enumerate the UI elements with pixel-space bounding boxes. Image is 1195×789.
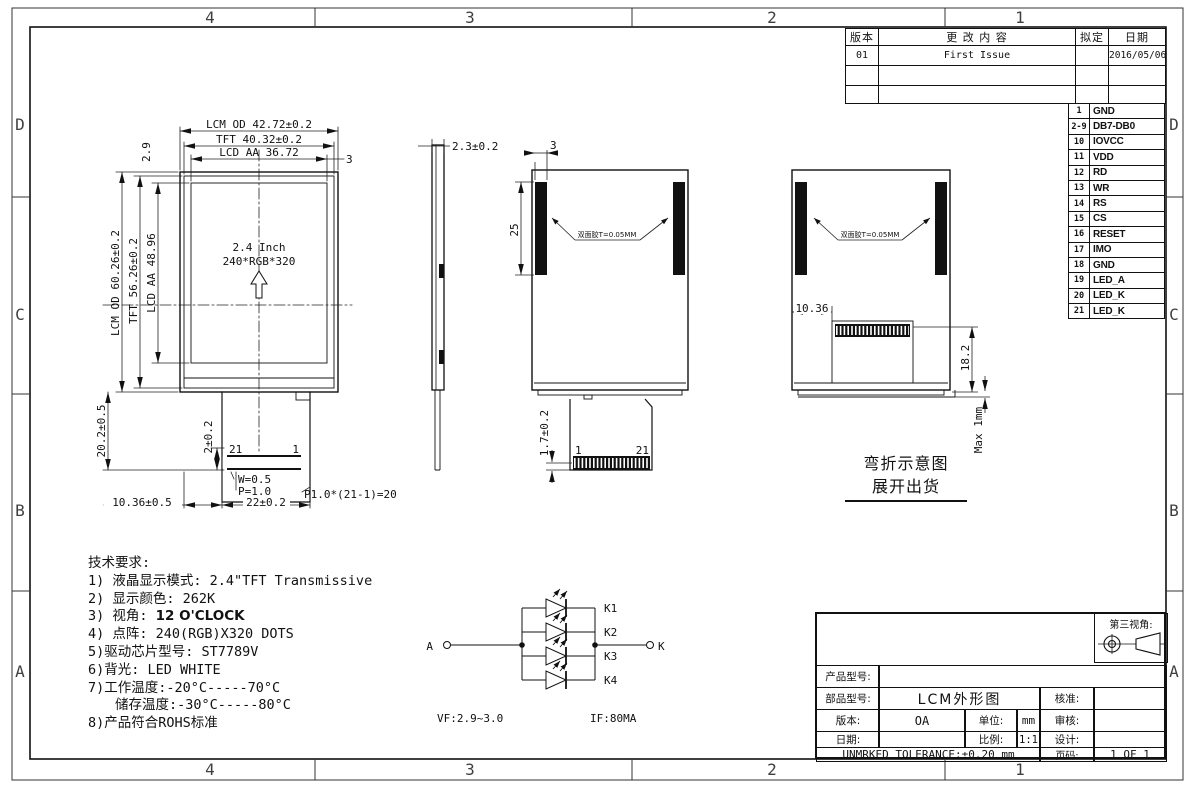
side-view: 2.3±0.2 xyxy=(418,139,498,470)
dim-lcd-aa-width: LCD AA 36.72 xyxy=(219,146,298,159)
date-value xyxy=(878,731,966,748)
revision-drafter xyxy=(1076,46,1109,66)
pin-number: 14 xyxy=(1069,196,1090,211)
revision-header-date: 日期 xyxy=(1109,29,1166,46)
pin-row: 15CS xyxy=(1069,211,1165,226)
tech-notes: 技术要求: 1) 液晶显示模式: 2.4"TFT Transmissive 2)… xyxy=(88,555,372,733)
tech-note-line: 2) 显示颜色: 262K xyxy=(88,591,372,609)
tape-callout-label: 双面胶T=0.05MM xyxy=(841,230,900,239)
fpc-pin-strip xyxy=(573,456,650,470)
pin-name: RS xyxy=(1090,196,1165,211)
pin-number: 1 xyxy=(1069,104,1090,119)
anode-label: A xyxy=(426,640,433,653)
tape-strip-right xyxy=(935,182,947,275)
branch-label-k3: K3 xyxy=(604,650,617,663)
dim-thickness: 2.3±0.2 xyxy=(452,140,498,153)
tech-note-line: 4) 点阵: 240(RGB)X320 DOTS xyxy=(88,626,372,644)
pin-name: RESET xyxy=(1090,227,1165,242)
zone-label-left-b: B xyxy=(15,501,25,520)
rear-view: 3 25 双面胶T=0.05MM 1 21 1.7±0.2 xyxy=(508,139,688,483)
tech-note-prefix: 3) 视角: xyxy=(88,608,156,624)
revision-row xyxy=(846,86,1166,104)
tolerance-note: UNMRKED TOLERANCE:±0.20 mm xyxy=(816,747,1041,762)
tech-note-viewing-angle: 12 O'CLOCK xyxy=(156,608,245,624)
folded-pin-strip xyxy=(835,324,910,337)
pin-number: 15 xyxy=(1069,211,1090,226)
zone-label-right-b: B xyxy=(1169,501,1179,520)
design-label: 设计: xyxy=(1039,731,1095,748)
dim-offset: 10.36±0.5 xyxy=(112,496,172,509)
dim-max-protrusion: Max 1mm xyxy=(972,406,985,453)
tech-note-line: 7)工作温度:-20°C-----70°C xyxy=(88,680,372,698)
pin-row: 17IMO xyxy=(1069,242,1165,257)
bend-view: 双面胶T=0.05MM 10.36 18.2 Max 1mm xyxy=(792,170,990,453)
zone-label-bottom-1: 1 xyxy=(1015,760,1025,779)
dim-fold-offset: 10.36 xyxy=(795,302,828,315)
pin-number: 13 xyxy=(1069,180,1090,195)
dim-lcd-aa-height: LCD AA 48.96 xyxy=(145,233,158,312)
page-value: 1 OF 1 xyxy=(1093,747,1167,762)
branch-label-k2: K2 xyxy=(604,626,617,639)
pin-number: 2-9 xyxy=(1069,119,1090,134)
zone-label-left-d: D xyxy=(15,115,25,134)
dim-fold-height: 18.2 xyxy=(959,345,972,372)
tech-note-line: 6)背光: LED WHITE xyxy=(88,662,372,680)
branch-label-k1: K1 xyxy=(604,602,617,615)
product-model-label: 产品型号: xyxy=(816,665,880,688)
pin-row: 1GND xyxy=(1069,104,1165,119)
revision-table: 版本 更 改 内 容 拟定 日期 01 First Issue 2016/05/… xyxy=(845,28,1166,104)
pin-table: 1GND 2-9DB7-DB0 10IOVCC 11VDD 12RD 13WR … xyxy=(1068,103,1165,319)
led-diode-icon xyxy=(522,637,595,665)
revision-date xyxy=(1109,86,1166,104)
dim-tft-height: TFT 56.26±0.2 xyxy=(127,238,140,324)
review-value xyxy=(1093,709,1167,732)
dim-pitch-total: P1.0*(21-1)=20 xyxy=(304,488,397,501)
revision-content: First Issue xyxy=(879,46,1076,66)
pin-name: WR xyxy=(1090,180,1165,195)
tech-note-line: 5)驱动芯片型号: ST7789V xyxy=(88,644,372,662)
pin-number: 18 xyxy=(1069,257,1090,272)
pin-name: DB7-DB0 xyxy=(1090,119,1165,134)
revision-version: 01 xyxy=(846,46,879,66)
revision-content xyxy=(879,66,1076,86)
revision-date xyxy=(1109,66,1166,86)
review-label: 审核: xyxy=(1039,709,1095,732)
dim-3: 3 xyxy=(346,153,353,166)
zone-label-top-3: 3 xyxy=(465,8,475,27)
pin-row: 2-9DB7-DB0 xyxy=(1069,119,1165,134)
screen-size-label: 2.4 Inch xyxy=(233,241,286,254)
pin-row: 12RD xyxy=(1069,165,1165,180)
cathode-label: K xyxy=(658,640,665,653)
page-label: 页码: xyxy=(1039,747,1095,762)
pin-number: 19 xyxy=(1069,273,1090,288)
approve-value xyxy=(1093,687,1167,710)
pin-number: 17 xyxy=(1069,242,1090,257)
dim-fpc-tail: 1.7±0.2 xyxy=(538,410,551,456)
approve-label: 核准: xyxy=(1039,687,1095,710)
pin-number: 20 xyxy=(1069,288,1090,303)
pin-21-label: 21 xyxy=(229,443,242,456)
pin-row: 20LED_K xyxy=(1069,288,1165,303)
led-diode-icon xyxy=(522,613,595,641)
pin-name: RD xyxy=(1090,165,1165,180)
bend-view-caption: 弯折示意图 展开出货 xyxy=(845,452,967,502)
version-label: 版本: xyxy=(816,709,880,732)
pin-name: LED_K xyxy=(1090,288,1165,303)
zone-label-left-c: C xyxy=(15,305,25,324)
pin-number: 11 xyxy=(1069,150,1090,165)
dim-tape-width: 3 xyxy=(550,139,557,152)
zone-label-top-4: 4 xyxy=(205,8,215,27)
unit-value: mm xyxy=(1016,709,1041,732)
revision-drafter xyxy=(1076,66,1109,86)
zone-label-left-a: A xyxy=(15,662,25,681)
scale-value: 1:1 xyxy=(1016,731,1041,748)
unit-label: 单位: xyxy=(964,709,1018,732)
tape-strip-right xyxy=(673,182,685,275)
branch-label-k4: K4 xyxy=(604,674,618,687)
tape-strip-left xyxy=(795,182,807,275)
scale-label: 比例: xyxy=(964,731,1018,748)
up-arrow-icon xyxy=(251,271,267,298)
tape-callout-label: 双面胶T=0.05MM xyxy=(578,230,637,239)
pin-row: 13WR xyxy=(1069,180,1165,195)
revision-drafter xyxy=(1076,86,1109,104)
front-view: 2.4 Inch 240*RGB*320 LCM OD 42.72±0.2 TF… xyxy=(95,118,397,509)
pin-row: 14RS xyxy=(1069,196,1165,211)
dim-fpc-width: 22±0.2 xyxy=(246,496,286,509)
bend-caption-line2: 展开出货 xyxy=(845,475,967,498)
zone-label-right-a: A xyxy=(1169,662,1179,681)
dim-lcm-od-width: LCM OD 42.72±0.2 xyxy=(206,118,312,131)
pin-number: 12 xyxy=(1069,165,1090,180)
tech-notes-title: 技术要求: xyxy=(88,555,372,573)
date-label: 日期: xyxy=(816,731,880,748)
pin-row: 21LED_K xyxy=(1069,304,1165,319)
pin-name: VDD xyxy=(1090,150,1165,165)
dim-fpc-drop: 20.2±0.5 xyxy=(95,405,108,458)
title-block: 第三视角: 产品型号: 部品型号: LCM外形图 核准: 版本: OA 单位: … xyxy=(815,612,1166,759)
led-diode-icon xyxy=(522,661,595,689)
tech-note-line: 3) 视角: 12 O'CLOCK xyxy=(88,608,372,626)
zone-label-top-2: 2 xyxy=(767,8,777,27)
tech-note-line: 储存温度:-30°C-----80°C xyxy=(88,697,372,715)
pin-row: 19LED_A xyxy=(1069,273,1165,288)
revision-content xyxy=(879,86,1076,104)
revision-version xyxy=(846,86,879,104)
third-angle-label: 第三视角: xyxy=(1095,614,1167,631)
third-angle-projection-icon xyxy=(1096,631,1166,657)
zone-label-bottom-3: 3 xyxy=(465,760,475,779)
tech-note-line: 1) 液晶显示模式: 2.4"TFT Transmissive xyxy=(88,573,372,591)
part-model-value: LCM外形图 xyxy=(878,687,1041,710)
revision-row xyxy=(846,66,1166,86)
pin-name: IMO xyxy=(1090,242,1165,257)
zone-label-bottom-4: 4 xyxy=(205,760,215,779)
pin-name: IOVCC xyxy=(1090,134,1165,149)
pin-number: 10 xyxy=(1069,134,1090,149)
zone-label-right-d: D xyxy=(1169,115,1179,134)
pin-21-label: 21 xyxy=(636,444,649,457)
tech-note-line: 8)产品符合ROHS标准 xyxy=(88,715,372,733)
spec-vf-label: VF:2.9~3.0 xyxy=(437,712,503,725)
pin-row: 11VDD xyxy=(1069,150,1165,165)
resolution-label: 240*RGB*320 xyxy=(223,255,296,268)
dim-tft-width: TFT 40.32±0.2 xyxy=(216,133,302,146)
spec-if-label: IF:80MA xyxy=(590,712,637,725)
bend-caption-line1: 弯折示意图 xyxy=(845,452,967,475)
led-diode-icon xyxy=(522,589,595,617)
dim-fpc-2: 2±0.2 xyxy=(202,420,215,453)
led-circuit: A K K1 xyxy=(426,589,665,725)
dim-lcm-od-height: LCM OD 60.26±0.2 xyxy=(109,230,122,336)
zone-label-bottom-2: 2 xyxy=(767,760,777,779)
version-value: OA xyxy=(878,709,966,732)
pin-row: 16RESET xyxy=(1069,227,1165,242)
zone-label-right-c: C xyxy=(1169,305,1179,324)
product-model-value xyxy=(878,665,1167,688)
pin-name: GND xyxy=(1090,257,1165,272)
pin-name: CS xyxy=(1090,211,1165,226)
pin-name: LED_A xyxy=(1090,273,1165,288)
part-model-label: 部品型号: xyxy=(816,687,880,710)
pin-number: 16 xyxy=(1069,227,1090,242)
pin-row: 18GND xyxy=(1069,257,1165,272)
pin-1-label: 1 xyxy=(292,443,299,456)
pin-1-label: 1 xyxy=(575,444,582,457)
zone-label-top-1: 1 xyxy=(1015,8,1025,27)
pin-name: LED_K xyxy=(1090,304,1165,319)
tape-strip-left xyxy=(535,182,547,275)
revision-header-content: 更 改 内 容 xyxy=(879,29,1076,46)
third-angle-box: 第三视角: xyxy=(1094,613,1168,663)
revision-row: 01 First Issue 2016/05/06 xyxy=(846,46,1166,66)
pin-name: GND xyxy=(1090,104,1165,119)
revision-header-version: 版本 xyxy=(846,29,879,46)
dim-tape-height: 25 xyxy=(508,223,521,236)
dim-2-9: 2.9 xyxy=(140,142,153,162)
revision-date: 2016/05/06 xyxy=(1109,46,1166,66)
drawing-sheet: 4 3 2 1 4 3 2 1 D C B A D C B A 2.4 Inch xyxy=(0,0,1195,789)
pin-row: 10IOVCC xyxy=(1069,134,1165,149)
design-value xyxy=(1093,731,1167,748)
revision-header-drafter: 拟定 xyxy=(1076,29,1109,46)
pin-number: 21 xyxy=(1069,304,1090,319)
revision-version xyxy=(846,66,879,86)
